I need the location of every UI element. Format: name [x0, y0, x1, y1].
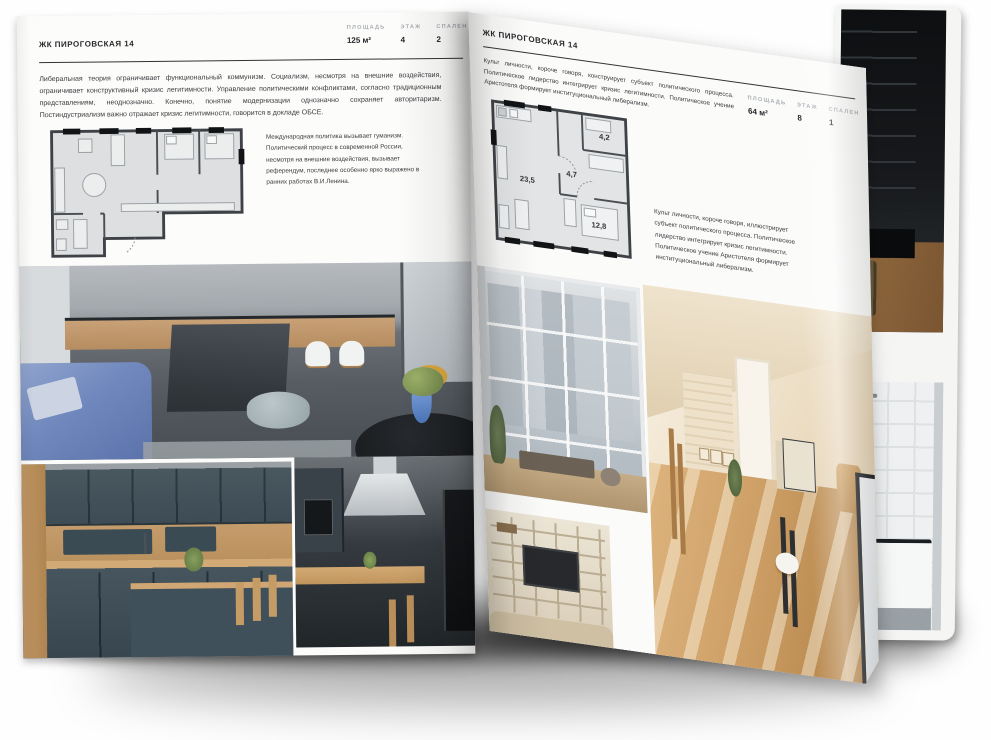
bar-stool-shape — [236, 582, 245, 625]
stat-area: ПЛОЩАДЬ 125 м² — [347, 25, 386, 45]
photo-dark-kitchen-hood — [294, 456, 475, 648]
bar-stool-shape — [389, 599, 397, 647]
bar-stool-shape — [407, 595, 415, 643]
stat-area-label: ПЛОЩАДЬ — [748, 95, 787, 106]
intro-paragraph: Либеральная теория ограничивает функцион… — [39, 70, 441, 122]
upper-cabinets-shape — [46, 467, 292, 526]
header-rule — [39, 58, 463, 64]
page-title: ЖК ПИРОГОВСКАЯ 14 — [39, 39, 134, 49]
stat-floor: ЭТАЖ 8 — [797, 102, 819, 125]
tv-shape — [522, 544, 579, 593]
photo-sunlit-hallway — [643, 285, 888, 687]
stat-floor-label: ЭТАЖ — [400, 24, 421, 30]
stat-floor: ЭТАЖ 4 — [400, 24, 421, 44]
picture-frames-shape — [699, 447, 709, 460]
photo-teal-kitchen — [21, 462, 293, 659]
stat-area-value: 64 м² — [748, 106, 787, 120]
stat-bedrooms-value: 1 — [829, 118, 860, 131]
fridge-shape — [443, 490, 475, 631]
stat-area-value: 125 м² — [347, 36, 386, 45]
stat-floor-label: ЭТАЖ — [797, 102, 818, 111]
note-paragraph: Культ личности, короче говоря, иллюстрир… — [654, 206, 806, 284]
photo-balcony-window — [477, 265, 648, 513]
black-table-shape — [355, 413, 473, 461]
stat-bedrooms-label: СПАЛЕН — [828, 107, 859, 117]
apartment-stats: ПЛОЩАДЬ 64 м² ЭТАЖ 8 СПАЛЕН 1 — [748, 95, 861, 131]
bathroom-wall-shape — [932, 382, 943, 630]
room-area-hall: 4,7 — [566, 169, 577, 179]
oven-shape — [304, 499, 333, 535]
flowers-shape — [402, 367, 443, 397]
pouf-shape — [247, 391, 311, 429]
rug-shape — [143, 439, 351, 459]
leaning-frames-shape — [782, 438, 816, 493]
note-paragraph: Международная политика вызывает гуманизм… — [266, 130, 425, 188]
stat-area-label: ПЛОЩАДЬ — [347, 25, 386, 31]
floorplan-right: 23,5 4,7 4,2 12,8 — [483, 90, 640, 268]
bar-stool-shape — [252, 578, 261, 621]
backsplash-shape — [63, 529, 152, 555]
page-left: ЖК ПИРОГОВСКАЯ 14 ПЛОЩАДЬ 125 м² ЭТАЖ 4 … — [17, 12, 476, 659]
bar-stool-shape — [268, 574, 277, 617]
plant-pot-shape — [363, 552, 376, 569]
faucet-shape — [144, 533, 146, 554]
page-right: ЖК ПИРОГОВСКАЯ 14 Культ личности, короче… — [468, 12, 888, 687]
plant-shape — [184, 548, 203, 571]
floorplan-left — [44, 122, 251, 264]
page-paper: ЖК ПИРОГОВСКАЯ 14 Культ личности, короче… — [468, 12, 888, 687]
stat-floor-value: 4 — [401, 35, 422, 44]
stat-floor-value: 8 — [797, 113, 818, 125]
photo-living-kitchen — [19, 262, 473, 461]
white-chair-shape — [305, 341, 330, 368]
window-shape — [400, 262, 472, 383]
apartment-stats: ПЛОЩАДЬ 125 м² ЭТАЖ 4 СПАЛЕН 2 — [347, 24, 468, 45]
wood-counter-shape — [295, 566, 424, 584]
white-chair-shape — [339, 340, 364, 367]
stat-bedrooms: СПАЛЕН 1 — [828, 107, 860, 131]
photo-shelving-tv — [485, 508, 613, 648]
magazine-mockup-scene: ЖК ПИРОГОВСКАЯ 14 ПЛОЩАДЬ 125 м² ЭТАЖ 4 … — [0, 0, 991, 740]
stat-area: ПЛОЩАДЬ 64 м² — [748, 95, 787, 121]
wood-wall-shape — [21, 464, 47, 658]
extractor-hood-shape — [343, 473, 426, 516]
room-area-bathroom: 4,2 — [599, 132, 610, 142]
